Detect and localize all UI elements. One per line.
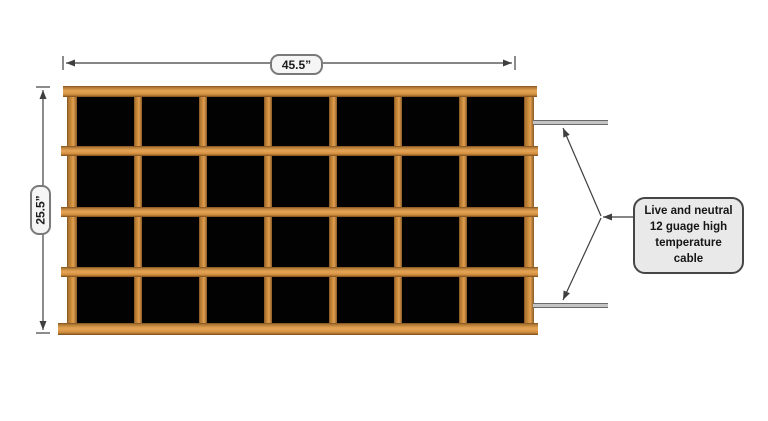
- cable-note-line-1: Live and neutral: [639, 204, 738, 220]
- cable-note-box: Live and neutral 12 guage high temperatu…: [633, 197, 744, 274]
- heater-panel-diagram: 45.5” 25.5” Live and neutral 12 guage hi…: [0, 0, 768, 421]
- width-dimension-text: 45.5”: [282, 58, 311, 72]
- cable-top: [533, 120, 608, 125]
- height-dimension-text: 25.5”: [34, 195, 48, 224]
- cable-note-line-3: temperature cable: [639, 236, 738, 268]
- width-dimension-label: 45.5”: [270, 54, 323, 75]
- cable-bottom: [533, 303, 608, 308]
- note-leader-to-bottom-cable: [563, 218, 601, 300]
- height-dimension-label: 25.5”: [30, 185, 51, 235]
- note-leader-to-top-cable: [563, 128, 601, 216]
- cable-note-line-2: 12 guage high: [639, 220, 738, 236]
